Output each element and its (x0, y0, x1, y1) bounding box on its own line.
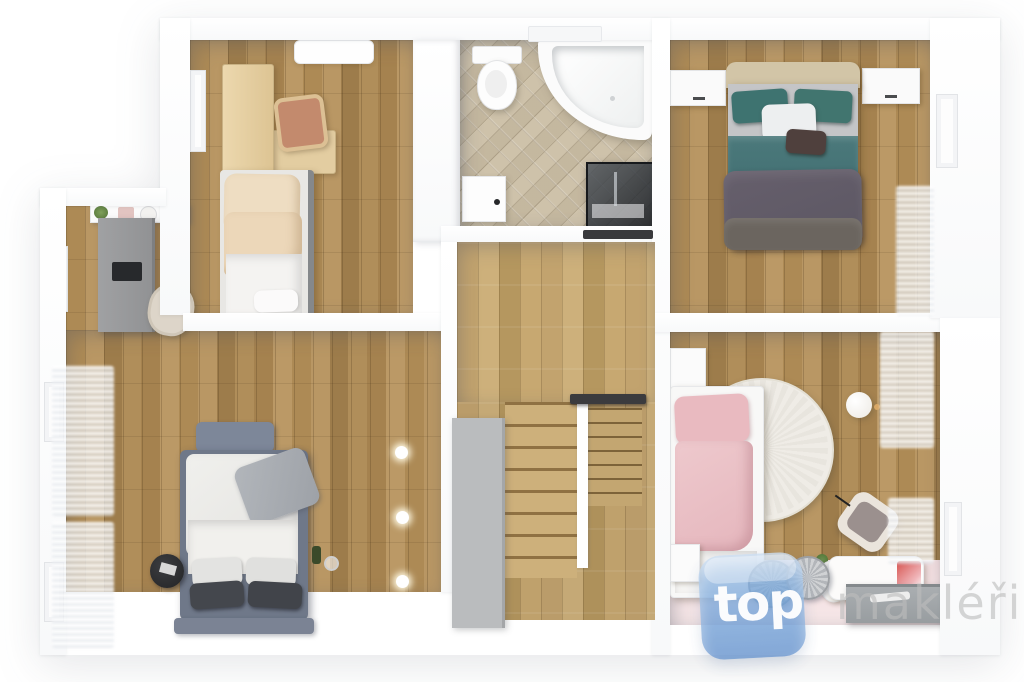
stair-tread (588, 450, 642, 464)
stair-tread (505, 424, 577, 446)
shower-cabin (586, 162, 654, 228)
floor-plan-render: top makléři (0, 0, 1024, 682)
door-study (190, 70, 206, 152)
wine-glass (324, 556, 339, 571)
bed-footboard (174, 618, 314, 634)
pink-duvet (675, 441, 753, 551)
blanket-fold (724, 218, 862, 250)
bath-cabinet (462, 176, 506, 222)
wood-desk (222, 64, 274, 176)
stair-tread (505, 512, 577, 534)
railing-upper (583, 230, 653, 239)
downlight (395, 446, 408, 459)
corner-bathtub (538, 40, 652, 140)
railing-lower (570, 394, 646, 404)
curtain-master (896, 186, 934, 316)
stair-tread (588, 492, 642, 506)
watermark-brand-text: makléři (836, 576, 1022, 630)
wall-left-upper (160, 18, 190, 315)
bathtub-drain (610, 96, 615, 101)
armchair-leg (835, 495, 851, 507)
stair-tread (588, 464, 642, 478)
bathtub-basin (552, 46, 644, 128)
nightstand-left (670, 70, 726, 106)
armchair-seat (844, 499, 892, 546)
wall-master-kids (652, 313, 940, 332)
toilet-seat (485, 70, 507, 98)
black-side-table (150, 554, 184, 588)
wall-right-upper (930, 18, 1000, 318)
shower-pipe (614, 172, 617, 206)
watermark-logo: top (697, 545, 807, 662)
stair-tread (588, 408, 642, 422)
nightstand-handle (693, 97, 705, 100)
wardrobe-closet (413, 40, 460, 242)
window-kids-room (944, 502, 962, 576)
room-bathroom (460, 40, 652, 230)
wine-bottle (312, 546, 321, 564)
stair-tread (505, 534, 577, 556)
stair-tread (588, 478, 642, 492)
curtain-kids-upper (880, 332, 934, 448)
downlight (396, 575, 409, 588)
stair-tread (588, 436, 642, 450)
toilet (477, 60, 517, 110)
dark-pillow-right (247, 581, 302, 610)
watermark-logo-text: top (712, 571, 803, 634)
gray-lower-wall (452, 418, 505, 628)
bed-headboard-panel (196, 422, 274, 452)
ceiling-vent (294, 40, 374, 64)
wall-study-bottom (183, 313, 457, 331)
dark-pillow-left (189, 580, 245, 610)
landing-floor (457, 242, 655, 402)
stair-tread (505, 446, 577, 468)
pink-pillow (674, 393, 750, 445)
stair-tread (505, 468, 577, 490)
hall-staircase (441, 226, 655, 632)
room-master-bedroom (670, 40, 930, 316)
curtain-left-upper (52, 366, 114, 516)
cabinet-knob (494, 199, 500, 205)
curtain-kids-lower (888, 498, 934, 564)
shower-base (592, 204, 644, 218)
curtain-left-lower (52, 522, 114, 648)
nightstand-handle (885, 95, 897, 98)
desk-chair (273, 93, 329, 153)
headboard-shelf (670, 348, 706, 390)
ball-lamp (846, 392, 872, 418)
table-card (159, 562, 177, 576)
nightstand-right (862, 68, 920, 104)
bathroom-wall-shelf (528, 26, 602, 42)
stair-tread (505, 556, 577, 578)
stair-tread (505, 402, 577, 424)
brown-cushion (785, 129, 827, 156)
downlight (396, 511, 409, 524)
stair-tread (505, 490, 577, 512)
stair-tread (588, 422, 642, 436)
stair-divider-wall (577, 402, 588, 568)
door-master-bedroom (936, 94, 958, 168)
small-dresser (670, 544, 700, 582)
laptop (112, 262, 142, 281)
